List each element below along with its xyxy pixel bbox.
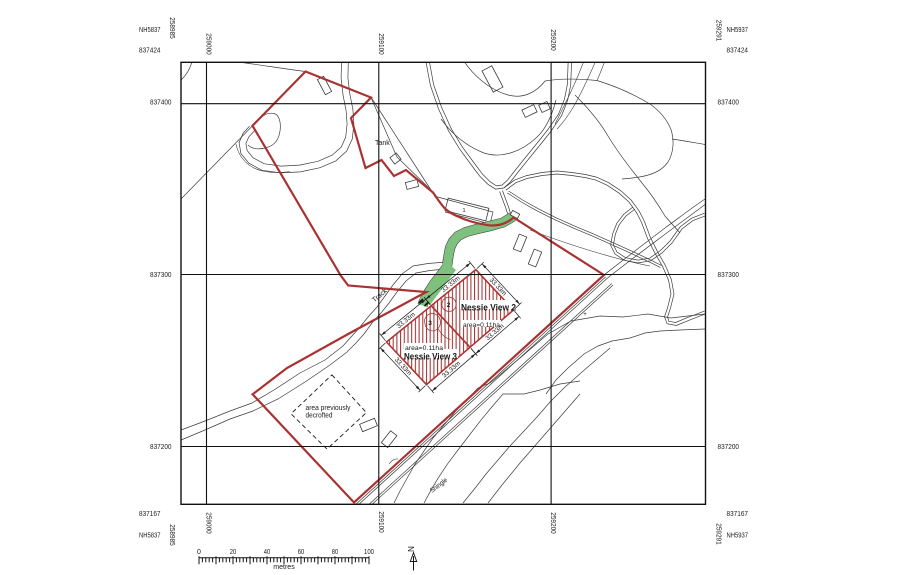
svg-text:N: N (406, 546, 415, 552)
svg-text:837424: 837424 (139, 48, 161, 55)
svg-text:area previously: area previously (306, 405, 351, 412)
svg-text:NH5837: NH5837 (139, 533, 161, 540)
svg-text:1: 1 (462, 208, 465, 214)
svg-text:259200: 259200 (549, 29, 556, 51)
svg-text:837424: 837424 (727, 48, 749, 55)
svg-text:837167: 837167 (727, 511, 749, 518)
svg-text:259200: 259200 (549, 512, 556, 534)
svg-text:837167: 837167 (139, 511, 161, 518)
svg-text:80: 80 (332, 549, 339, 556)
svg-text:258985: 258985 (168, 524, 175, 546)
svg-text:259100: 259100 (377, 511, 384, 533)
svg-text:837300: 837300 (718, 272, 740, 279)
svg-text:60: 60 (298, 549, 305, 556)
svg-text:258985: 258985 (168, 17, 175, 39)
svg-text:259291: 259291 (715, 523, 722, 545)
svg-text:259291: 259291 (715, 20, 722, 42)
svg-text:3: 3 (428, 320, 432, 327)
svg-text:metres: metres (273, 564, 295, 571)
svg-text:Tank: Tank (375, 140, 390, 147)
svg-text:259100: 259100 (377, 33, 384, 55)
svg-text:NH5937: NH5937 (727, 533, 749, 540)
svg-text:area=0.11ha: area=0.11ha (405, 345, 443, 352)
svg-text:837200: 837200 (150, 444, 172, 451)
svg-text:NH5837: NH5837 (139, 27, 161, 34)
svg-text:40: 40 (264, 549, 271, 556)
svg-text:100: 100 (364, 549, 374, 556)
svg-text:837200: 837200 (718, 444, 740, 451)
svg-text:NH5937: NH5937 (727, 27, 749, 34)
svg-text:837400: 837400 (150, 100, 172, 107)
svg-text:Track: Track (371, 287, 389, 304)
svg-text:20: 20 (230, 549, 237, 556)
svg-text:837400: 837400 (718, 100, 740, 107)
svg-text:2: 2 (447, 302, 451, 309)
svg-text:decrofted: decrofted (306, 413, 333, 420)
svg-text:259000: 259000 (205, 512, 212, 534)
svg-text:259000: 259000 (205, 33, 212, 55)
svg-text:Nessie View 2: Nessie View 2 (461, 302, 516, 313)
svg-text:837300: 837300 (150, 272, 172, 279)
svg-text:Shingle: Shingle (429, 477, 449, 495)
svg-text:+: + (583, 312, 587, 318)
svg-text:0: 0 (197, 549, 201, 556)
